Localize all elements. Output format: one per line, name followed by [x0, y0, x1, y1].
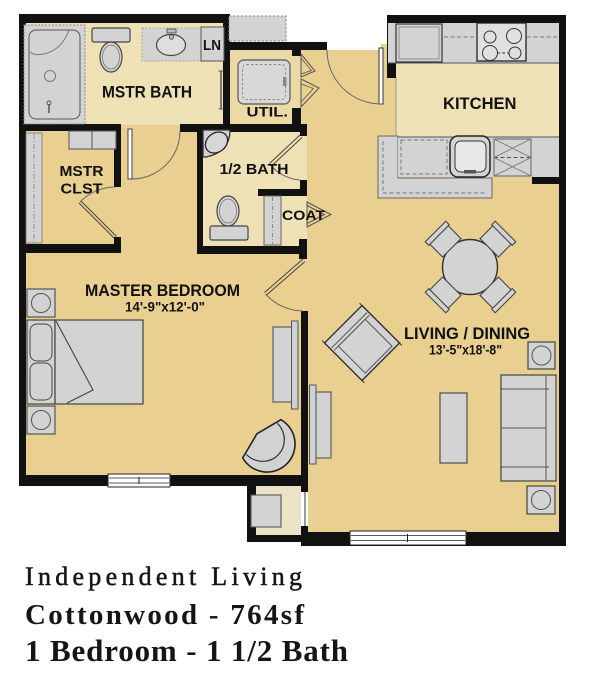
svg-text:MASTER BEDROOM: MASTER BEDROOM — [85, 282, 240, 300]
svg-text:CLST: CLST — [61, 181, 103, 198]
svg-text:LIVING / DINING: LIVING / DINING — [404, 325, 530, 343]
svg-text:1/2 BATH: 1/2 BATH — [220, 162, 289, 178]
svg-text:Independent Living: Independent Living — [25, 562, 302, 591]
svg-text:MSTR BATH: MSTR BATH — [102, 84, 192, 102]
svg-text:14'-9"x12'-0": 14'-9"x12'-0" — [125, 299, 205, 315]
svg-text:13'-5"x18'-8": 13'-5"x18'-8" — [429, 342, 502, 358]
svg-text:UTIL.: UTIL. — [247, 104, 289, 120]
svg-text:1 Bedroom - 1 1/2 Bath: 1 Bedroom - 1 1/2 Bath — [25, 633, 348, 668]
svg-text:COAT: COAT — [282, 207, 325, 223]
svg-text:Cottonwood - 764sf: Cottonwood - 764sf — [25, 599, 304, 631]
svg-text:LN: LN — [203, 37, 221, 54]
svg-text:KITCHEN: KITCHEN — [443, 95, 517, 113]
svg-text:MSTR: MSTR — [60, 163, 104, 180]
